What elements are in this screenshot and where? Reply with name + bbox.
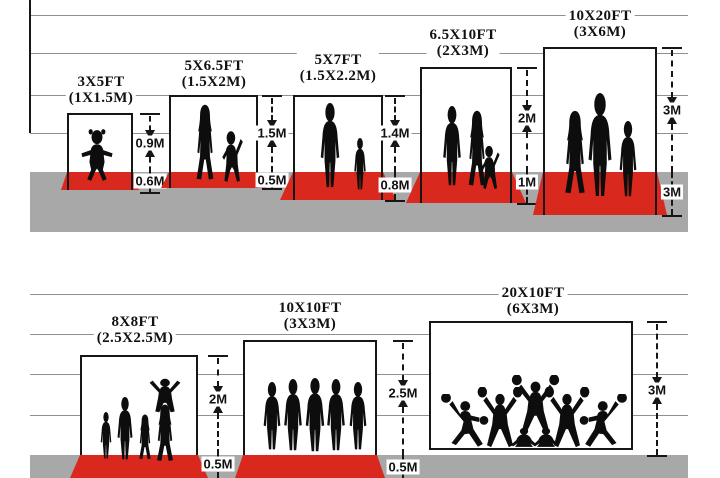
panel-title-ft: 3X5FT — [69, 74, 133, 90]
measure-line-upper — [394, 98, 396, 121]
figure-kidwave — [214, 128, 250, 183]
measure-label-wall: 0.9M — [134, 136, 167, 151]
backdrop-box-edge-left — [67, 172, 69, 190]
panel-title-ft: 5X6.5FT — [182, 58, 246, 74]
panel-title-6.5x10ft: 6.5X10FT(2X3M) — [427, 27, 500, 59]
measure-label-floor: 0.5M — [256, 173, 289, 188]
figure-man — [309, 103, 351, 188]
panel-title-ft: 10X10FT — [279, 300, 342, 316]
measure-label-floor: 0.5M — [387, 460, 420, 475]
panel-title-ft: 6.5X10FT — [430, 27, 497, 43]
figure-sit — [530, 424, 562, 450]
measure-label-wall: 2.5M — [387, 386, 420, 401]
measure-label-floor: 0.5M — [202, 457, 235, 472]
measure-tick-bottom — [662, 215, 682, 217]
measure-line-upper — [526, 70, 528, 106]
measure-label-floor: 3M — [661, 185, 683, 200]
panel-title-5x7ft: 5X7FT(1.5X2.2M) — [297, 52, 379, 84]
measure-label-wall: 2M — [516, 111, 538, 126]
carpet — [235, 455, 385, 478]
figure-lunge — [578, 394, 633, 449]
figure-man — [347, 138, 373, 190]
backdrop-box-edge-left — [169, 172, 171, 188]
panel-title-m: (1.5X2.2M) — [300, 68, 376, 84]
measure-line-lower — [149, 157, 151, 172]
measure-tick-top — [262, 95, 282, 97]
panel-title-ft: 10X20FT — [569, 8, 632, 24]
measure-label-wall: 3M — [661, 103, 683, 118]
measure-tick-top — [385, 95, 405, 97]
measure-line-upper — [671, 50, 673, 98]
backdrop-box-edge-right — [655, 172, 657, 215]
measure-line-lower — [394, 147, 396, 172]
backdrop-box-edge-left — [293, 172, 295, 200]
gridline — [30, 294, 688, 295]
measure-line-lower — [526, 132, 528, 172]
measure-label-wall: 1.5M — [256, 126, 289, 141]
panel-title-m: (2.5X2.5M) — [97, 330, 173, 346]
measure-tick-bottom — [262, 188, 282, 190]
backdrop-box-edge-left — [543, 172, 545, 215]
measure-tick-top — [140, 113, 160, 115]
panel-title-m: (3X3M) — [279, 316, 342, 332]
panel-title-m: (2X3M) — [430, 43, 497, 59]
measure-line-upper — [656, 324, 658, 378]
figure-kidwave — [474, 143, 506, 190]
measure-label-wall: 1.4M — [379, 126, 412, 141]
measure-tick-bottom — [647, 455, 667, 457]
measure-tick-top — [393, 340, 413, 342]
panel-title-m: (6X3M) — [502, 301, 565, 317]
panel-title-m: (3X6M) — [569, 24, 632, 40]
backdrop-size-diagram: 3X5FT(1X1.5M)0.9M0.6M5X6.5FT(1.5X2M)1.5M… — [0, 0, 720, 478]
measure-line-lower — [671, 124, 673, 172]
measure-line-lower — [217, 413, 219, 455]
measure-tick-top — [647, 321, 667, 323]
backdrop-box-edge-left — [420, 172, 422, 203]
panel-title-8x8ft: 8X8FT(2.5X2.5M) — [94, 314, 176, 346]
measure-tick-bottom — [517, 203, 537, 205]
panel-title-ft: 20X10FT — [502, 285, 565, 301]
measure-tick-bottom — [385, 200, 405, 202]
measure-label-wall: 3M — [646, 383, 668, 398]
panel-title-10x10ft: 10X10FT(3X3M) — [276, 300, 345, 332]
measure-line-upper — [149, 116, 151, 131]
panel-title-m: (1.5X2M) — [182, 74, 246, 90]
measure-label-floor: 1M — [516, 175, 538, 190]
panel-title-5x6.5ft: 5X6.5FT(1.5X2M) — [179, 58, 249, 90]
figure-toddler — [76, 128, 118, 182]
measure-line-upper — [402, 343, 404, 381]
axis-line — [29, 0, 31, 133]
measure-tick-top — [517, 67, 537, 69]
figure-man — [339, 382, 377, 450]
measure-line-lower — [271, 147, 273, 172]
panel-title-3x5ft: 3X5FT(1X1.5M) — [66, 74, 136, 106]
measure-tick-bottom — [140, 192, 160, 194]
measure-label-floor: 0.8M — [379, 178, 412, 193]
measure-tick-top — [662, 47, 682, 49]
measure-line-lower — [402, 407, 404, 455]
measure-line-upper — [217, 358, 219, 387]
figure-man — [609, 121, 647, 197]
measure-tick-top — [208, 355, 228, 357]
panel-title-10x20ft: 10X20FT(3X6M) — [566, 8, 635, 40]
panel-title-ft: 5X7FT — [300, 52, 376, 68]
panel-title-ft: 8X8FT — [97, 314, 173, 330]
panel-title-m: (1X1.5M) — [69, 90, 133, 106]
measure-label-floor: 0.6M — [134, 174, 167, 189]
figure-varms — [143, 377, 187, 413]
backdrop-box-edge-right — [510, 172, 512, 203]
measure-line-upper — [271, 98, 273, 121]
measure-label-wall: 2M — [207, 392, 229, 407]
measure-line-lower — [656, 404, 658, 455]
panel-title-20x10ft: 20X10FT(6X3M) — [499, 285, 568, 317]
